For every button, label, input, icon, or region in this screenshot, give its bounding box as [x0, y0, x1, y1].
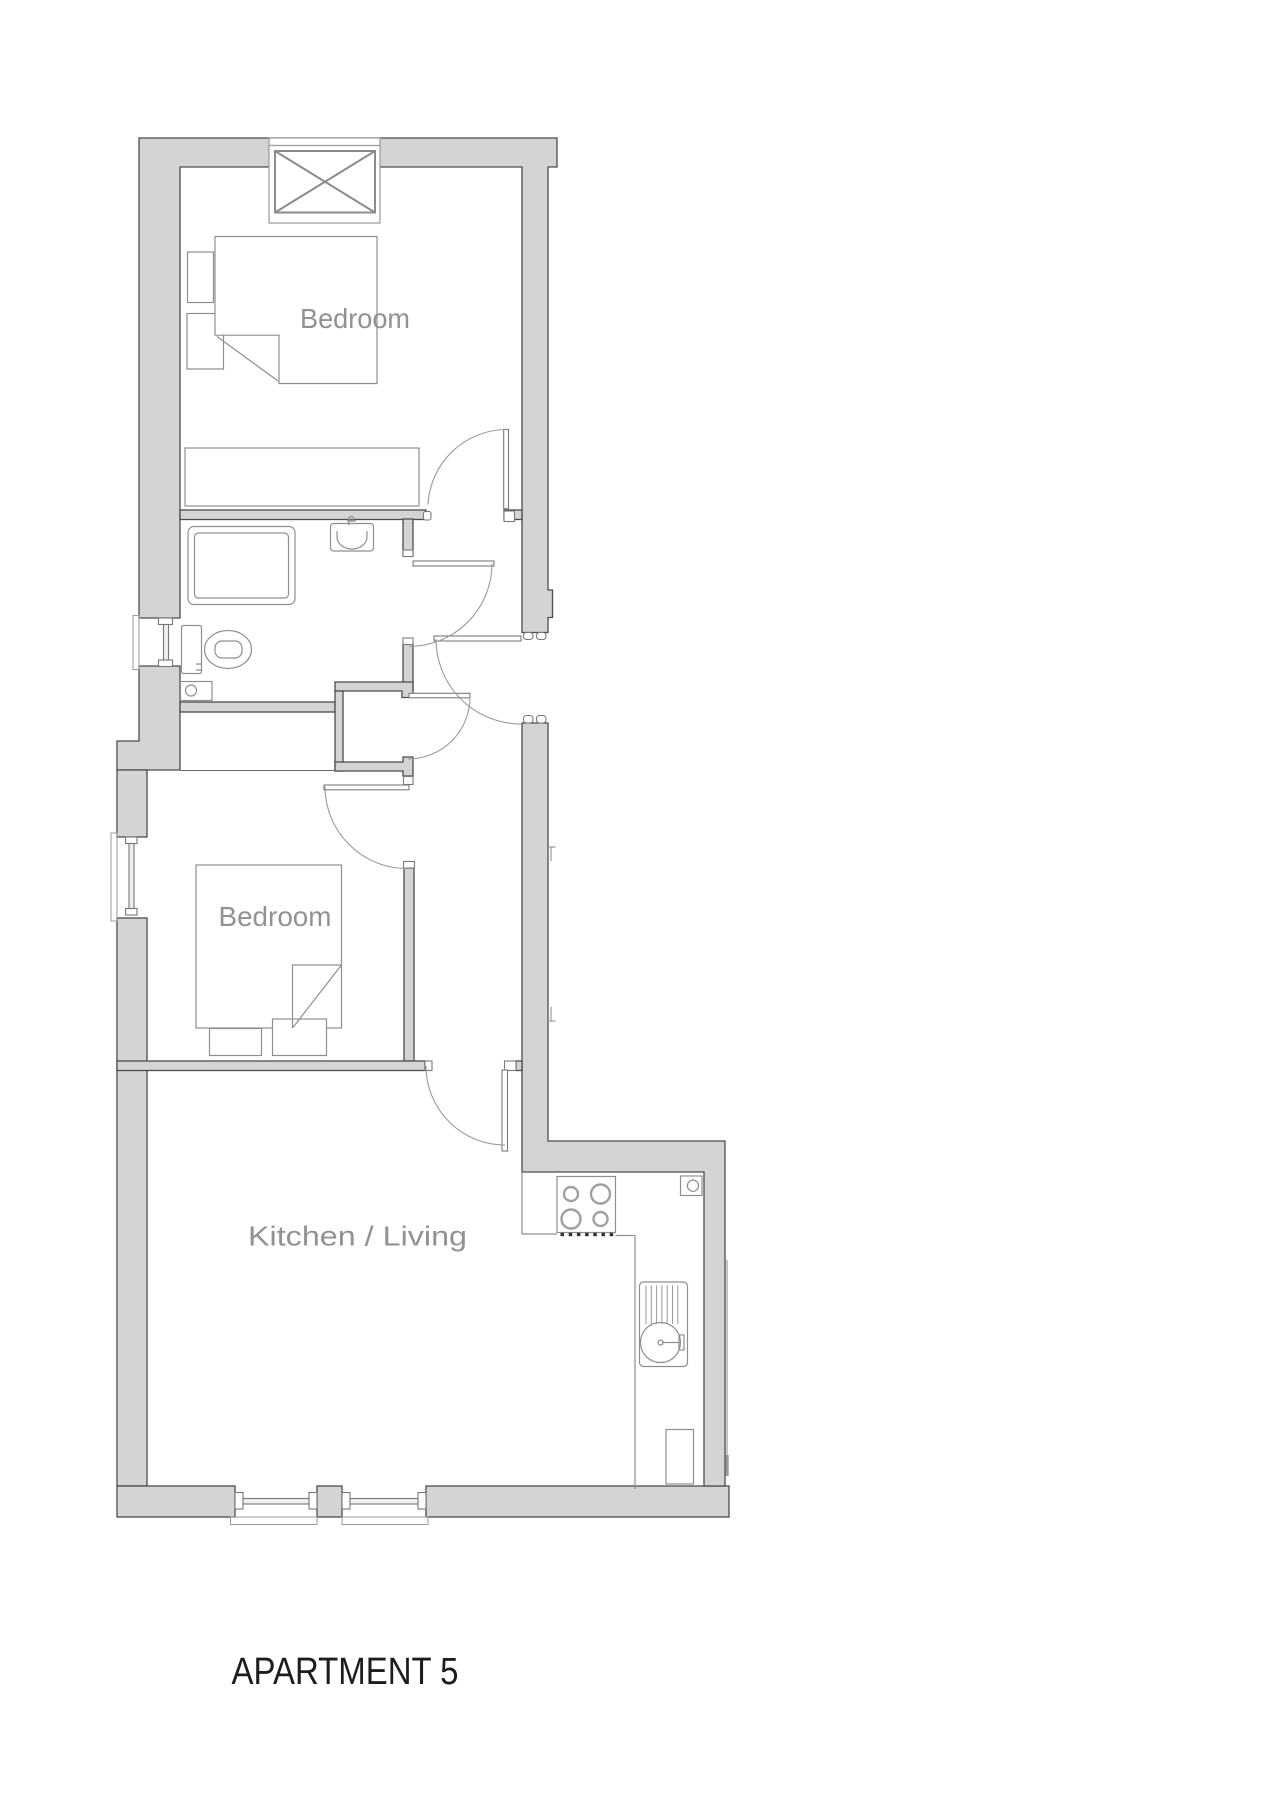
svg-text:Bedroom: Bedroom — [219, 901, 332, 932]
svg-text:Bedroom: Bedroom — [300, 303, 410, 334]
svg-text:Kitchen / Living: Kitchen / Living — [248, 1221, 467, 1252]
svg-text:APARTMENT 5: APARTMENT 5 — [232, 1651, 459, 1693]
